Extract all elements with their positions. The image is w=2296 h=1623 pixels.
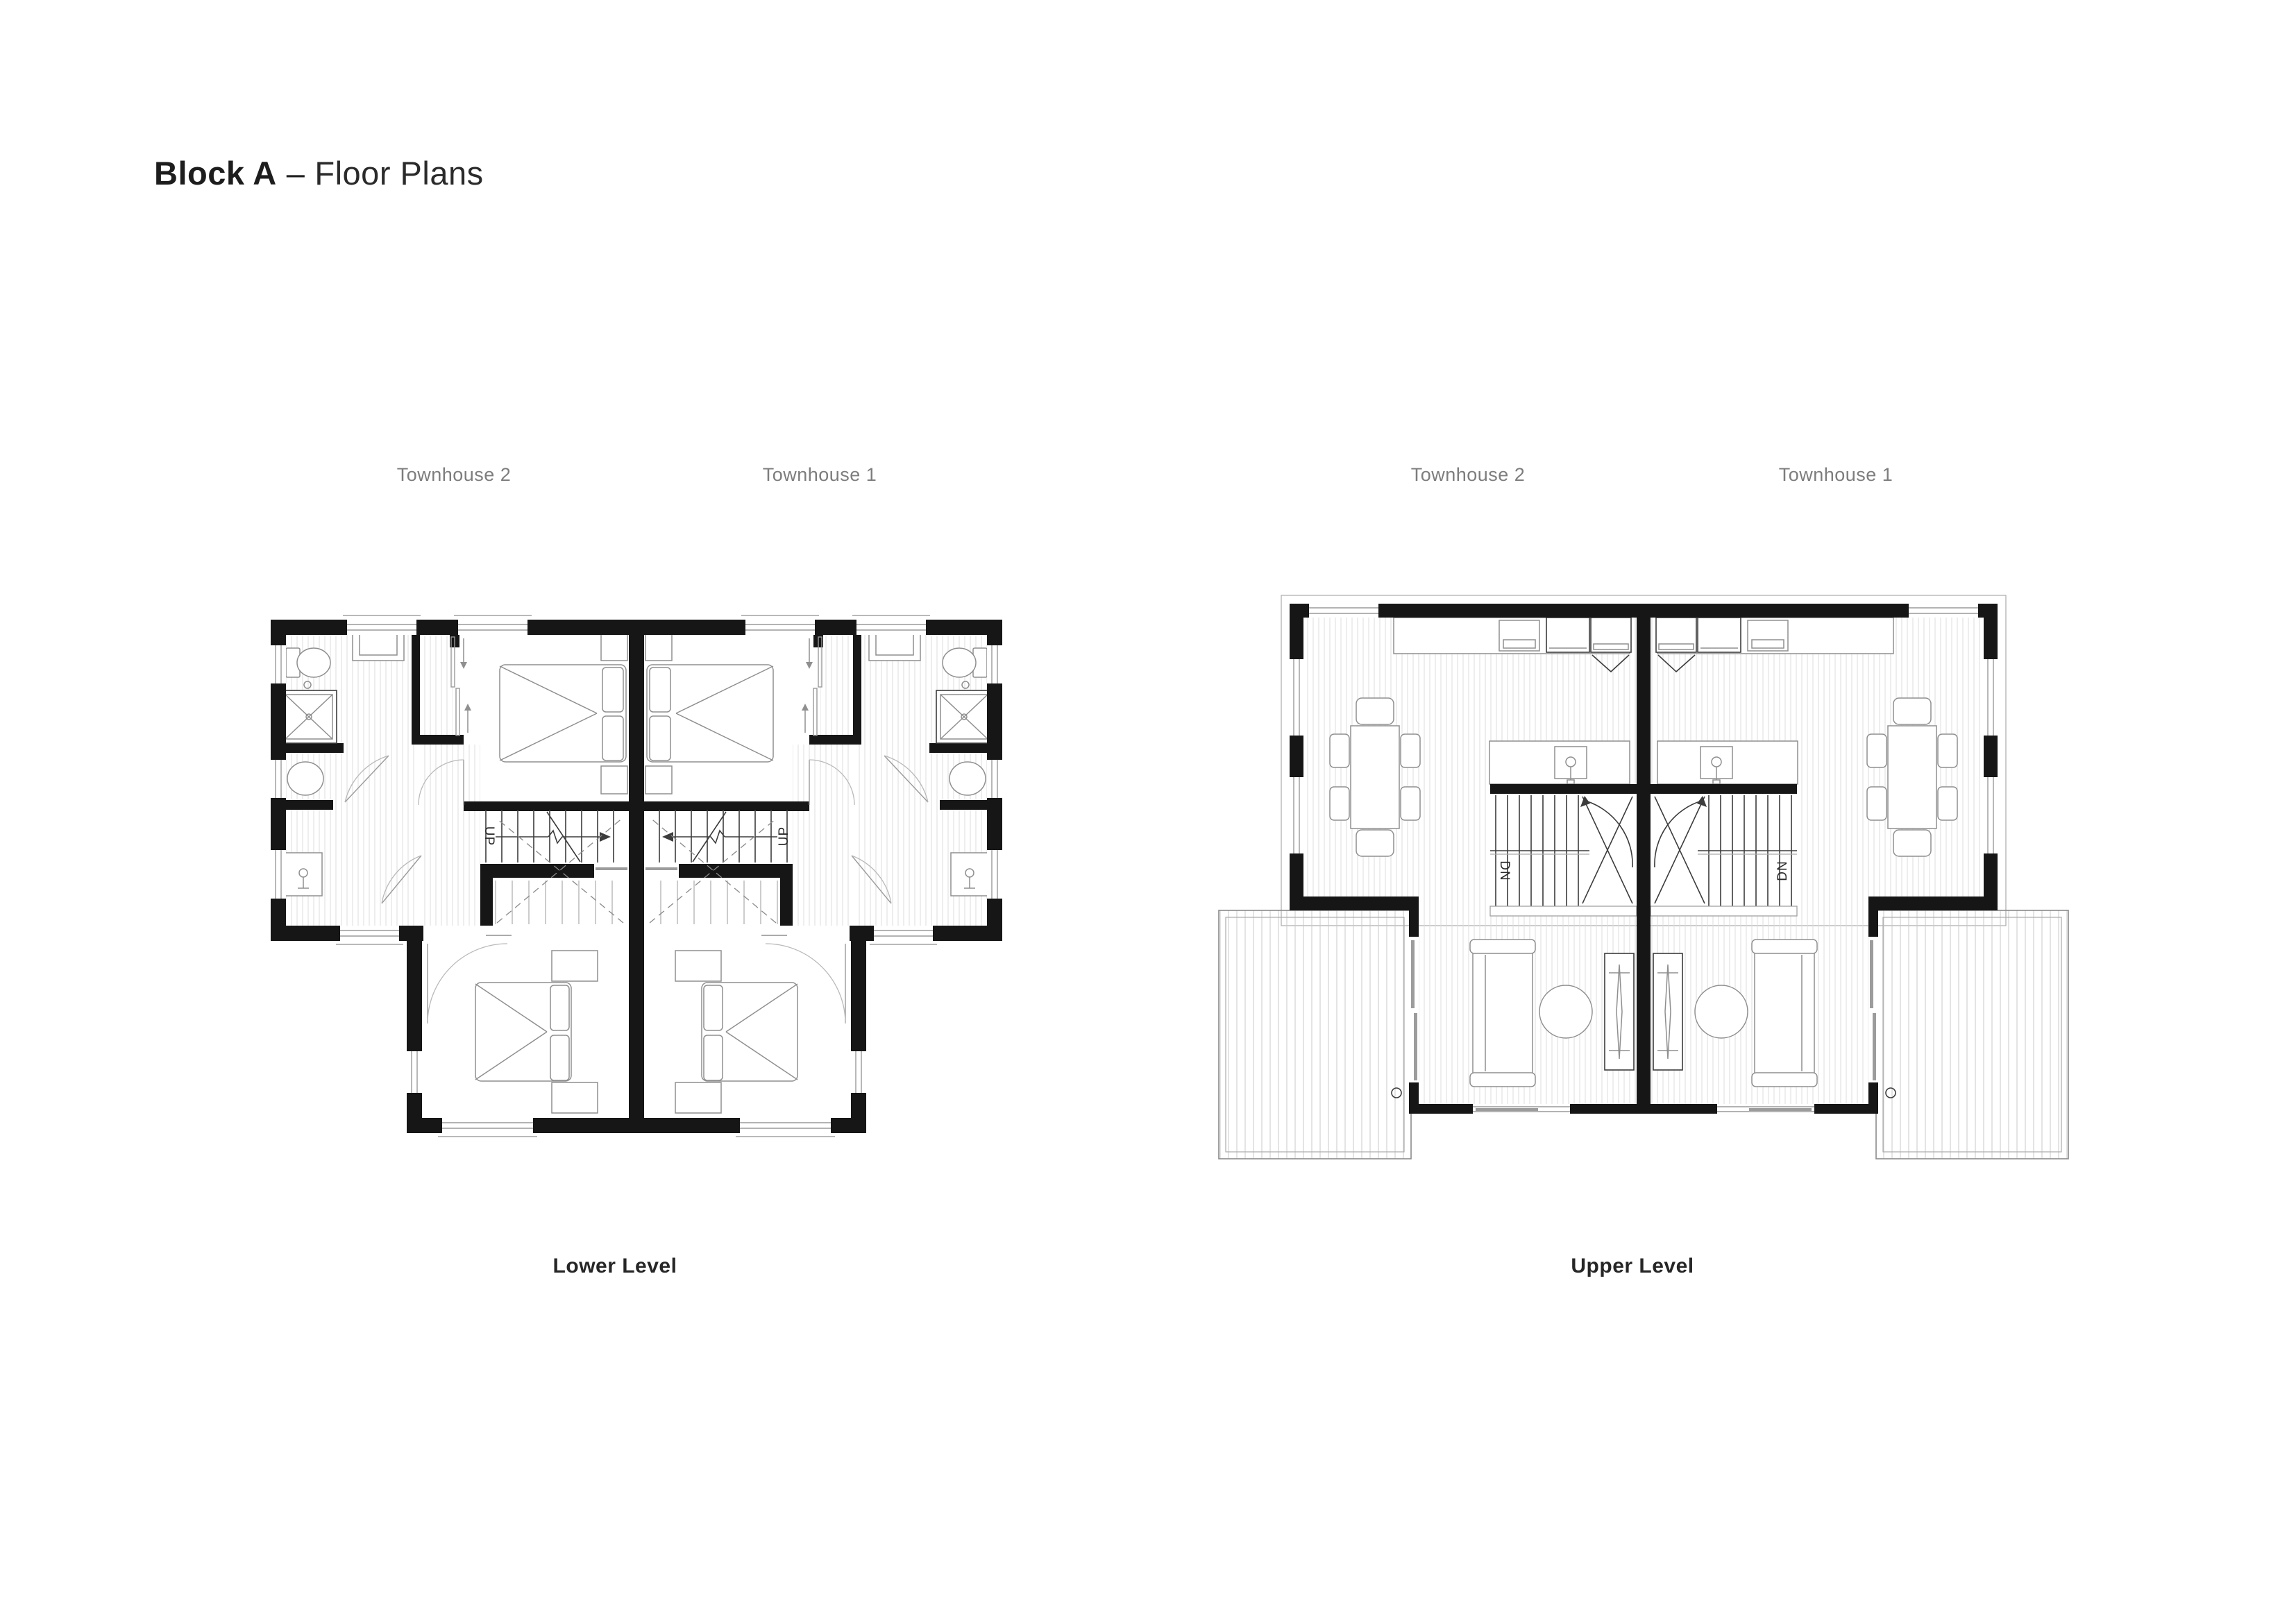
stair-label-dn-right: DN (1775, 860, 1790, 881)
stair-label-dn-left: DN (1497, 860, 1512, 881)
unit-label-townhouse1-lower: Townhouse 1 (763, 464, 877, 485)
floor-plans-drawing: UP UP Townhouse 2 Townhouse 1 Lower Leve… (0, 0, 2296, 1623)
stair-label-up-right: UP (777, 826, 791, 846)
party-wall (1637, 604, 1651, 1114)
unit-label-townhouse1-upper: Townhouse 1 (1779, 464, 1893, 485)
caption-upper-level: Upper Level (1571, 1255, 1694, 1277)
party-wall (629, 620, 644, 1133)
unit-label-townhouse2-lower: Townhouse 2 (397, 464, 512, 485)
upper-level-plan: DN DN Townhouse 2 Townhouse 1 Upper Leve… (1219, 464, 2068, 1277)
stair-label-up-left: UP (482, 826, 496, 846)
lower-level-plan: UP UP Townhouse 2 Townhouse 1 Lower Leve… (271, 464, 1002, 1277)
caption-lower-level: Lower Level (553, 1255, 677, 1277)
unit-label-townhouse2-upper: Townhouse 2 (1411, 464, 1526, 485)
page: Block A–Floor Plans (0, 0, 2296, 1623)
